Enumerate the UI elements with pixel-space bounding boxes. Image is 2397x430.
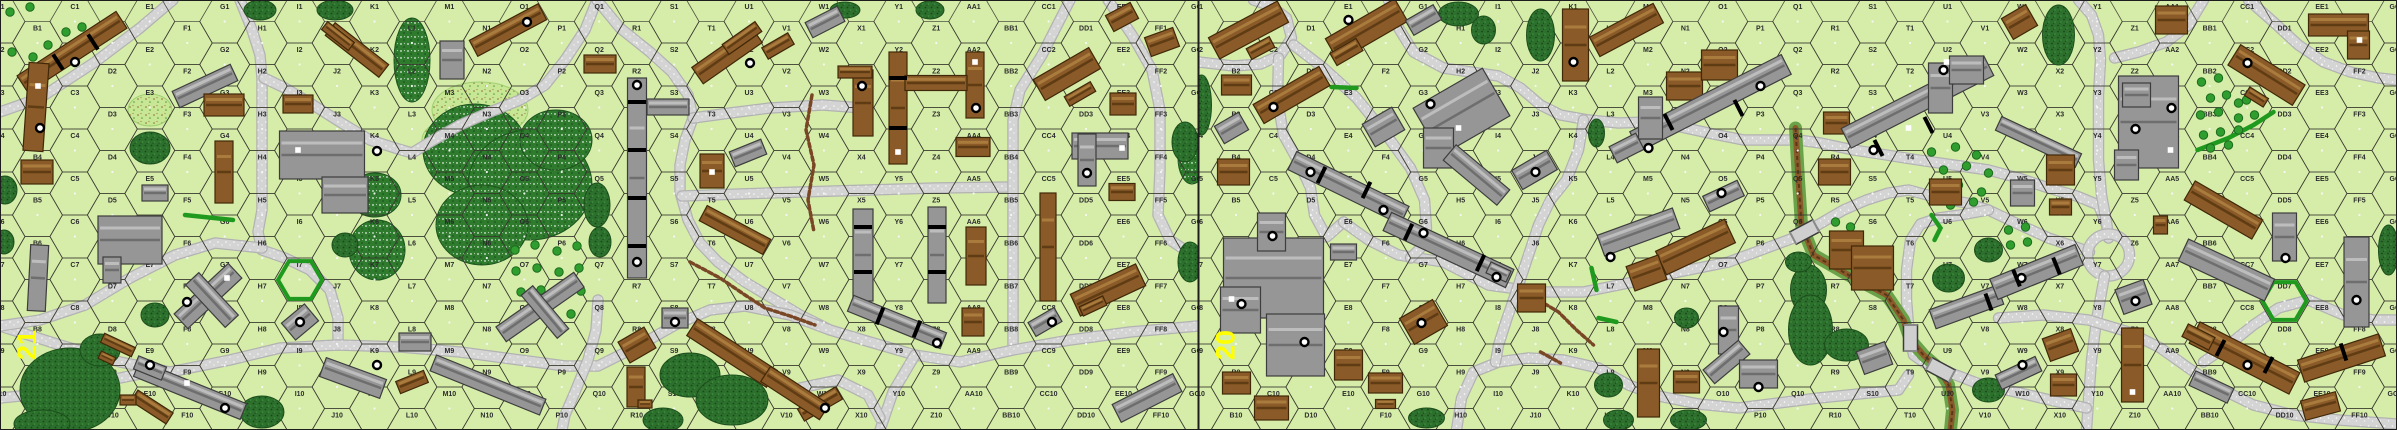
hex-label-B10: B10: [1230, 413, 1243, 420]
tree-clump: [1786, 252, 1812, 272]
hex-center-dot: [2358, 386, 2360, 388]
hex-center-dot: [1460, 300, 1462, 302]
chimney-marker: [1645, 144, 1653, 152]
hex-center-dot: [1422, 364, 1424, 366]
hex-label-K8: K8: [1569, 305, 1578, 312]
wooden-building: [2154, 216, 2168, 234]
hex-label-DD3: DD3: [1079, 112, 1093, 119]
hex-label-M2: M2: [1643, 47, 1653, 54]
hex-label-DD6: DD6: [1079, 241, 1093, 248]
stone-building: [1221, 287, 1261, 333]
hex-center-dot: [1684, 171, 1686, 173]
tree-clump: [1409, 408, 1445, 428]
hex-center-dot: [373, 278, 375, 280]
hex-center-dot: [1010, 42, 1012, 44]
hex-center-dot: [860, 386, 862, 388]
hex-center-dot: [336, 214, 338, 216]
hex-label-CC4: CC4: [2240, 133, 2254, 140]
wooden-building: [2050, 199, 2072, 215]
orchard-tree: [2206, 94, 2214, 102]
hex-center-dot: [1010, 343, 1012, 345]
hex-label-W3: W3: [2017, 90, 2028, 97]
wooden-building: [1110, 93, 1136, 115]
hex-center-dot: [1834, 300, 1836, 302]
orchard-tree: [575, 264, 583, 272]
stairwell-marker: [295, 147, 301, 153]
stone-building: [2011, 180, 2035, 206]
hex-center-dot: [785, 300, 787, 302]
hex-center-dot: [823, 149, 825, 151]
hex-center-dot: [1347, 235, 1349, 237]
hex-label-D3: D3: [108, 112, 117, 119]
hex-label-CC2: CC2: [1042, 47, 1056, 54]
hex-label-P10: P10: [1754, 413, 1767, 420]
hex-center-dot: [561, 343, 563, 345]
hex-label-W8: W8: [2017, 305, 2028, 312]
hex-center-dot: [224, 235, 226, 237]
hex-center-dot: [1609, 214, 1611, 216]
hex-label-S2: S2: [670, 47, 679, 54]
hex-center-dot: [898, 192, 900, 194]
hex-label-I10: I10: [295, 391, 305, 398]
hex-label-DD3: DD3: [2278, 112, 2292, 119]
orchard-tree: [1972, 151, 1980, 159]
hex-center-dot: [710, 128, 712, 130]
hex-label-Q3: Q3: [1793, 90, 1802, 97]
board-20[interactable]: A1A2A3A4A5A6A7A8A9A10B1B2B3B4B5B6B7B8B9B…: [1174, 0, 2397, 430]
hex-label-S3: S3: [1868, 90, 1877, 97]
hex-center-dot: [2171, 235, 2173, 237]
hex-center-dot: [561, 386, 563, 388]
hex-center-dot: [2283, 300, 2285, 302]
hex-label-K1: K1: [370, 4, 379, 11]
hex-label-W9: W9: [2017, 348, 2028, 355]
hex-label-EE5: EE5: [2315, 176, 2328, 183]
hex-center-dot: [1122, 364, 1124, 366]
hex-center-dot: [1460, 214, 1462, 216]
hex-center-dot: [860, 343, 862, 345]
tree-clump: [1595, 373, 1623, 397]
hex-center-dot: [1422, 63, 1424, 65]
hex-center-dot: [2321, 278, 2323, 280]
hex-label-F10: F10: [1380, 413, 1392, 420]
hex-label-BB9: BB9: [1004, 370, 1018, 377]
hex-label-F9: F9: [183, 370, 191, 377]
hex-label-E3: E3: [1344, 90, 1353, 97]
wooden-building: [1222, 75, 1252, 95]
hex-label-T7: T7: [1906, 284, 1914, 291]
hex-center-dot: [2246, 20, 2248, 22]
chimney-marker: [746, 59, 754, 67]
orchard-tree: [2006, 241, 2014, 249]
hex-center-dot: [2283, 42, 2285, 44]
hex-center-dot: [2096, 106, 2098, 108]
orchard-tree: [2234, 126, 2242, 134]
hex-label-EE5: EE5: [1117, 176, 1130, 183]
hex-center-dot: [1797, 63, 1799, 65]
hex-label-V1: V1: [1981, 26, 1990, 33]
hex-label-L6: L6: [408, 241, 416, 248]
hex-label-T3: T3: [707, 112, 715, 119]
hex-label-X6: X6: [2056, 241, 2065, 248]
hex-label-K4: K4: [1569, 133, 1578, 140]
hex-label-J5: J5: [1532, 198, 1540, 205]
hex-label-C5: C5: [1269, 176, 1278, 183]
hex-center-dot: [2096, 192, 2098, 194]
hex-center-dot: [1834, 386, 1836, 388]
hex-label-DD5: DD5: [1079, 198, 1093, 205]
hex-center-dot: [823, 192, 825, 194]
hex-label-B5: B5: [1231, 198, 1240, 205]
hex-center-dot: [1909, 85, 1911, 87]
chimney-marker: [146, 361, 154, 369]
orchard-tree: [573, 242, 581, 250]
hex-label-GG9: GG9: [2390, 348, 2397, 355]
hex-label-N4: N4: [1681, 155, 1690, 162]
hex-label-Z10: Z10: [2129, 413, 2141, 420]
hex-label-Y1: Y1: [895, 4, 904, 11]
hex-label-H5: H5: [258, 198, 267, 205]
hex-label-J10: J10: [331, 413, 343, 420]
hex-label-G1: G1: [220, 4, 229, 11]
hex-label-V8: V8: [1981, 327, 1990, 334]
hex-label-V4: V4: [1981, 155, 1990, 162]
hex-center-dot: [1160, 128, 1162, 130]
hex-center-dot: [1722, 20, 1724, 22]
tree-clump: [1671, 410, 1707, 430]
hex-label-FF9: FF9: [2353, 370, 2366, 377]
hex-center-dot: [2209, 85, 2211, 87]
orchard-tree: [511, 246, 519, 254]
hex-label-CC4: CC4: [1042, 133, 1056, 140]
hex-label-GG10: GG10: [2388, 391, 2397, 398]
hex-center-dot: [1048, 364, 1050, 366]
hex-center-dot: [2171, 63, 2173, 65]
wooden-building: [2348, 31, 2370, 59]
orchard-tree: [2004, 226, 2012, 234]
hex-label-P3: P3: [557, 112, 566, 119]
hex-label-S5: S5: [670, 176, 679, 183]
stairwell-marker: [1119, 145, 1125, 151]
hex-label-G2: G2: [220, 47, 229, 54]
hex-label-Q3: Q3: [595, 90, 604, 97]
hex-label-CC1: CC1: [1042, 4, 1056, 11]
hex-center-dot: [1160, 257, 1162, 259]
hex-label-BB2: BB2: [1004, 69, 1018, 76]
hex-label-M5: M5: [1643, 176, 1653, 183]
hex-center-dot: [2096, 278, 2098, 280]
chimney-marker: [36, 124, 44, 132]
hex-label-EE6: EE6: [1117, 219, 1130, 226]
hex-center-dot: [2096, 364, 2098, 366]
hex-label-U1: U1: [745, 4, 754, 11]
hex-center-dot: [1310, 42, 1312, 44]
orchard-tree: [531, 241, 539, 249]
hex-label-P1: P1: [557, 26, 566, 33]
hex-center-dot: [1497, 149, 1499, 151]
hex-center-dot: [261, 85, 263, 87]
hex-label-Y7: Y7: [895, 262, 904, 269]
hex-center-dot: [486, 257, 488, 259]
hex-center-dot: [2358, 85, 2360, 87]
hex-center-dot: [523, 278, 525, 280]
hex-center-dot: [748, 321, 750, 323]
hex-label-J7: J7: [333, 284, 341, 291]
board-21[interactable]: A1A2A3A4A5A6A7A8A9A10B1B2B3B4B5B6B7B8B9B…: [0, 0, 1223, 430]
hex-label-H9: H9: [1456, 370, 1465, 377]
hex-center-dot: [598, 20, 600, 22]
tree-clump: [643, 408, 683, 430]
stairwell-marker: [224, 275, 230, 281]
hex-label-FF2: FF2: [1155, 69, 1168, 76]
hex-center-dot: [1534, 214, 1536, 216]
hex-label-P4: P4: [557, 155, 566, 162]
hex-center-dot: [299, 192, 301, 194]
hex-label-P8: P8: [1756, 327, 1765, 334]
hex-label-O4: O4: [520, 133, 529, 140]
orchard-tree: [2021, 223, 2029, 231]
brush-patch: [128, 94, 172, 126]
hex-center-dot: [1722, 149, 1724, 151]
chimney-marker: [1301, 338, 1309, 346]
orchard-tree: [2197, 78, 2205, 86]
hex-center-dot: [224, 364, 226, 366]
hex-center-dot: [1572, 106, 1574, 108]
hex-center-dot: [149, 278, 151, 280]
wooden-building: [1040, 193, 1056, 301]
hex-center-dot: [2358, 214, 2360, 216]
hex-center-dot: [973, 407, 975, 409]
hex-center-dot: [2096, 321, 2098, 323]
hex-label-J2: J2: [1532, 69, 1540, 76]
hex-center-dot: [1946, 235, 1948, 237]
hex-center-dot: [2246, 321, 2248, 323]
tree-clump: [317, 0, 353, 20]
hex-center-dot: [636, 300, 638, 302]
hex-label-O5: O5: [1718, 176, 1727, 183]
hex-label-Q9: Q9: [595, 348, 604, 355]
hex-label-U9: U9: [1943, 348, 1952, 355]
hex-center-dot: [2358, 171, 2360, 173]
hex-label-BB4: BB4: [2203, 155, 2217, 162]
hex-label-C4: C4: [70, 133, 79, 140]
chimney-marker: [972, 104, 980, 112]
hex-center-dot: [935, 128, 937, 130]
hex-center-dot: [2021, 235, 2023, 237]
hex-center-dot: [2059, 300, 2061, 302]
hex-center-dot: [1946, 149, 1948, 151]
hex-center-dot: [1310, 128, 1312, 130]
map-viewport[interactable]: A1A2A3A4A5A6A7A8A9A10B1B2B3B4B5B6B7B8B9B…: [0, 0, 2397, 430]
wooden-building: [838, 66, 872, 78]
hex-center-dot: [1122, 321, 1124, 323]
wooden-building: [966, 227, 986, 285]
hex-label-F8: F8: [1382, 327, 1390, 334]
hex-center-dot: [1797, 407, 1799, 409]
orchard-tree: [2199, 131, 2207, 139]
chimney-marker: [1532, 168, 1540, 176]
hex-label-E9: E9: [146, 348, 155, 355]
hex-center-dot: [710, 257, 712, 259]
hex-label-P5: P5: [1756, 198, 1765, 205]
hex-center-dot: [935, 386, 937, 388]
hex-label-AA9: AA9: [2165, 348, 2179, 355]
stone-building: [440, 41, 464, 79]
hex-label-T9: T9: [1906, 370, 1914, 377]
hex-center-dot: [2209, 42, 2211, 44]
hex-center-dot: [1534, 128, 1536, 130]
tree-clump: [1439, 2, 1479, 26]
hex-center-dot: [1647, 321, 1649, 323]
hex-center-dot: [1085, 214, 1087, 216]
hex-label-K10: K10: [1567, 391, 1580, 398]
hex-label-H3: H3: [258, 112, 267, 119]
hex-label-U5: U5: [745, 176, 754, 183]
hex-center-dot: [1684, 214, 1686, 216]
hex-center-dot: [74, 149, 76, 151]
hex-center-dot: [336, 300, 338, 302]
hex-label-X9: X9: [857, 370, 866, 377]
hex-label-FF5: FF5: [1155, 198, 1168, 205]
hex-label-V3: V3: [1981, 112, 1990, 119]
hex-center-dot: [261, 386, 263, 388]
hex-center-dot: [1797, 106, 1799, 108]
hex-center-dot: [1872, 106, 1874, 108]
wooden-building: [1852, 246, 1894, 290]
hex-center-dot: [1572, 407, 1574, 409]
hex-center-dot: [898, 407, 900, 409]
tree-clump: [589, 227, 611, 257]
hex-label-R1: R1: [1831, 26, 1840, 33]
hex-center-dot: [898, 235, 900, 237]
hex-center-dot: [448, 192, 450, 194]
hex-center-dot: [1572, 235, 1574, 237]
hex-label-CC9: CC9: [1042, 348, 1056, 355]
hex-center-dot: [2321, 106, 2323, 108]
hex-center-dot: [561, 171, 563, 173]
stairwell-marker: [35, 83, 41, 89]
hex-label-D4: D4: [108, 155, 117, 162]
hex-center-dot: [1834, 85, 1836, 87]
hex-label-AA10: AA10: [965, 391, 983, 398]
hex-center-dot: [1422, 192, 1424, 194]
hex-center-dot: [898, 364, 900, 366]
hex-center-dot: [74, 235, 76, 237]
hex-label-D2: D2: [108, 69, 117, 76]
hex-center-dot: [1010, 214, 1012, 216]
hex-center-dot: [261, 214, 263, 216]
hex-center-dot: [710, 85, 712, 87]
hex-center-dot: [2171, 192, 2173, 194]
hex-center-dot: [186, 42, 188, 44]
hex-label-I2: I2: [1495, 47, 1501, 54]
hex-label-K4: K4: [370, 133, 379, 140]
hex-label-Y3: Y3: [2093, 90, 2102, 97]
hex-label-W6: W6: [819, 219, 830, 226]
hex-center-dot: [2209, 128, 2211, 130]
chimney-marker: [2132, 125, 2140, 133]
wooden-building: [584, 55, 616, 73]
hex-center-dot: [1684, 42, 1686, 44]
hex-center-dot: [411, 42, 413, 44]
chimney-marker: [183, 298, 191, 306]
orchard-tree: [2196, 111, 2204, 119]
map-svg[interactable]: A1A2A3A4A5A6A7A8A9A10B1B2B3B4B5B6B7B8B9B…: [0, 0, 2397, 430]
hex-label-Z6: Z6: [2131, 241, 2139, 248]
hex-label-N8: N8: [482, 327, 491, 334]
hex-label-V2: V2: [782, 69, 791, 76]
hex-center-dot: [636, 42, 638, 44]
hex-center-dot: [74, 106, 76, 108]
hex-center-dot: [1122, 235, 1124, 237]
hex-center-dot: [448, 20, 450, 22]
hex-label-Q2: Q2: [595, 47, 604, 54]
hex-label-M3: M3: [1643, 90, 1653, 97]
orchard-tree: [78, 23, 86, 31]
hex-label-S6: S6: [670, 219, 679, 226]
hex-label-M10: M10: [443, 391, 457, 398]
hex-label-G10: G10: [1417, 391, 1430, 398]
hex-label-W2: W2: [2017, 47, 2028, 54]
hex-center-dot: [111, 171, 113, 173]
hex-label-D1: D1: [1306, 26, 1315, 33]
wooden-building: [1223, 372, 1251, 394]
hex-label-W10: W10: [2015, 391, 2030, 398]
hex-label-X10: X10: [2054, 413, 2067, 420]
hex-center-dot: [1460, 386, 1462, 388]
hex-label-V3: V3: [782, 112, 791, 119]
hex-label-DD10: DD10: [1077, 413, 1095, 420]
hex-center-dot: [1385, 257, 1387, 259]
tree-clump: [2043, 5, 2075, 65]
hex-label-R1: R1: [632, 26, 641, 33]
hex-label-X7: X7: [2056, 284, 2065, 291]
hex-label-DD8: DD8: [1079, 327, 1093, 334]
hex-label-W5: W5: [819, 176, 830, 183]
hex-label-Q5: Q5: [1793, 176, 1802, 183]
hex-label-K6: K6: [370, 219, 379, 226]
stone-building: [1950, 56, 1984, 84]
hex-label-X5: X5: [857, 198, 866, 205]
hex-center-dot: [74, 20, 76, 22]
hex-center-dot: [111, 42, 113, 44]
hex-label-O2: O2: [520, 47, 529, 54]
hex-label-Z9: Z9: [932, 370, 940, 377]
tree-clump: [1172, 122, 1198, 162]
chimney-marker: [633, 81, 641, 89]
hex-label-F2: F2: [183, 69, 191, 76]
hex-center-dot: [1048, 407, 1050, 409]
hex-center-dot: [748, 20, 750, 22]
hex-center-dot: [1797, 20, 1799, 22]
chimney-marker: [1718, 189, 1726, 197]
hex-label-GG5: GG5: [2390, 176, 2397, 183]
hex-center-dot: [1385, 42, 1387, 44]
hex-label-D10: D10: [1304, 413, 1317, 420]
hex-center-dot: [299, 364, 301, 366]
hex-center-dot: [1272, 149, 1274, 151]
hex-label-P7: P7: [1756, 284, 1765, 291]
hex-label-X8: X8: [857, 327, 866, 334]
hex-label-T6: T6: [1906, 241, 1914, 248]
hex-center-dot: [598, 407, 600, 409]
hex-label-FF4: FF4: [2353, 155, 2366, 162]
hex-label-Q7: Q7: [595, 262, 604, 269]
hex-center-dot: [1722, 407, 1724, 409]
hex-label-P10: P10: [556, 413, 569, 420]
hex-center-dot: [2321, 149, 2323, 151]
orchard-tree: [29, 53, 37, 61]
